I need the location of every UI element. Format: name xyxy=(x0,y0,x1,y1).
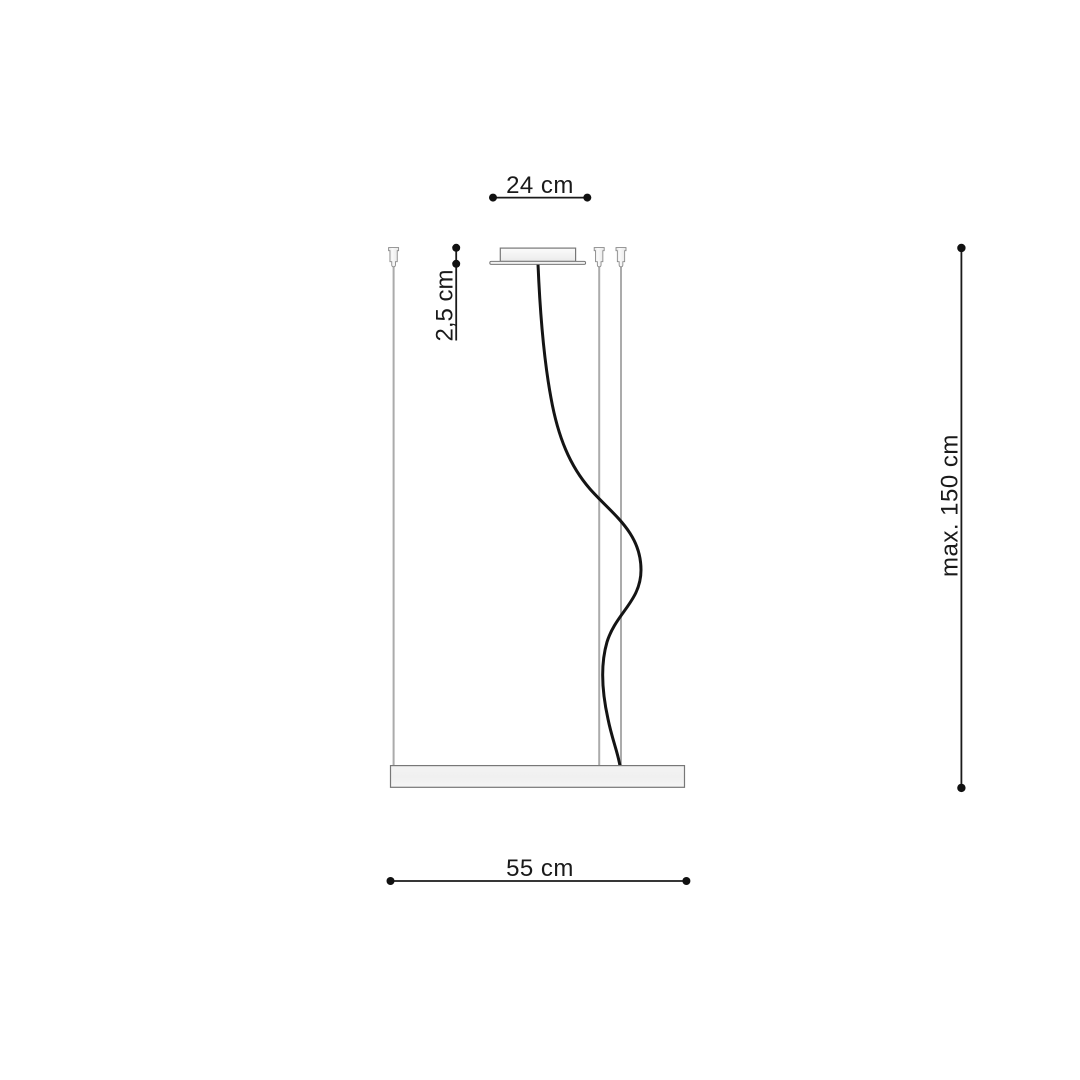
svg-text:55 cm: 55 cm xyxy=(506,855,574,882)
svg-text:24 cm: 24 cm xyxy=(506,172,574,199)
svg-text:max. 150 cm: max. 150 cm xyxy=(937,434,964,577)
svg-text:2,5 cm: 2,5 cm xyxy=(432,269,459,341)
